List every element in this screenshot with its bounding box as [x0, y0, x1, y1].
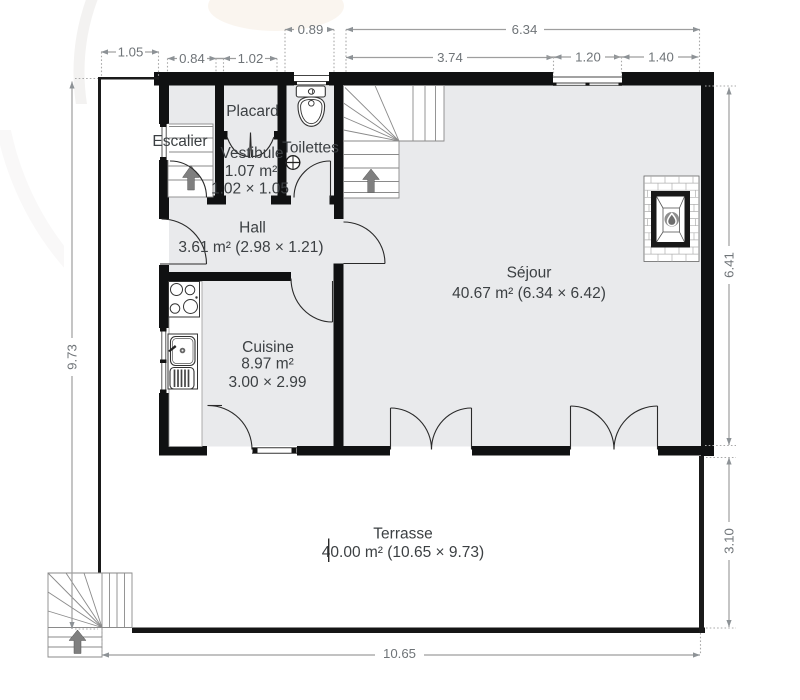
svg-text:40.00 m² (10.65 × 9.73): 40.00 m² (10.65 × 9.73) [322, 544, 484, 561]
svg-text:1.07 m²: 1.07 m² [225, 163, 278, 180]
svg-text:9.73: 9.73 [65, 344, 80, 370]
svg-text:1.20: 1.20 [575, 50, 601, 65]
svg-text:Cuisine: Cuisine [242, 339, 294, 356]
svg-text:1.02 × 1.05: 1.02 × 1.05 [211, 181, 289, 198]
svg-text:8.97 m²: 8.97 m² [241, 356, 294, 373]
svg-text:Escalier: Escalier [152, 133, 207, 150]
svg-text:40.67 m² (6.34 × 6.42): 40.67 m² (6.34 × 6.42) [452, 285, 606, 302]
svg-text:3.00 × 2.99: 3.00 × 2.99 [229, 374, 307, 391]
svg-text:3.10: 3.10 [722, 528, 737, 554]
svg-text:Toilettes: Toilettes [282, 140, 339, 157]
svg-text:3.74: 3.74 [437, 50, 463, 65]
svg-text:1.02: 1.02 [238, 51, 264, 66]
svg-text:Séjour: Séjour [507, 265, 552, 282]
svg-text:1.05: 1.05 [118, 45, 144, 60]
svg-text:1.40: 1.40 [648, 50, 674, 65]
svg-text:0.84: 0.84 [179, 51, 205, 66]
svg-text:Terrasse: Terrasse [373, 526, 432, 543]
svg-text:6.41: 6.41 [722, 252, 737, 278]
svg-text:3.61 m² (2.98 × 1.21): 3.61 m² (2.98 × 1.21) [178, 239, 323, 256]
svg-text:6.34: 6.34 [512, 22, 538, 37]
svg-text:Vestibule: Vestibule [221, 145, 284, 162]
svg-text:10.65: 10.65 [383, 646, 416, 661]
svg-text:0.89: 0.89 [298, 22, 324, 37]
svg-text:Hall: Hall [239, 220, 266, 237]
svg-text:Placard: Placard [226, 103, 279, 120]
